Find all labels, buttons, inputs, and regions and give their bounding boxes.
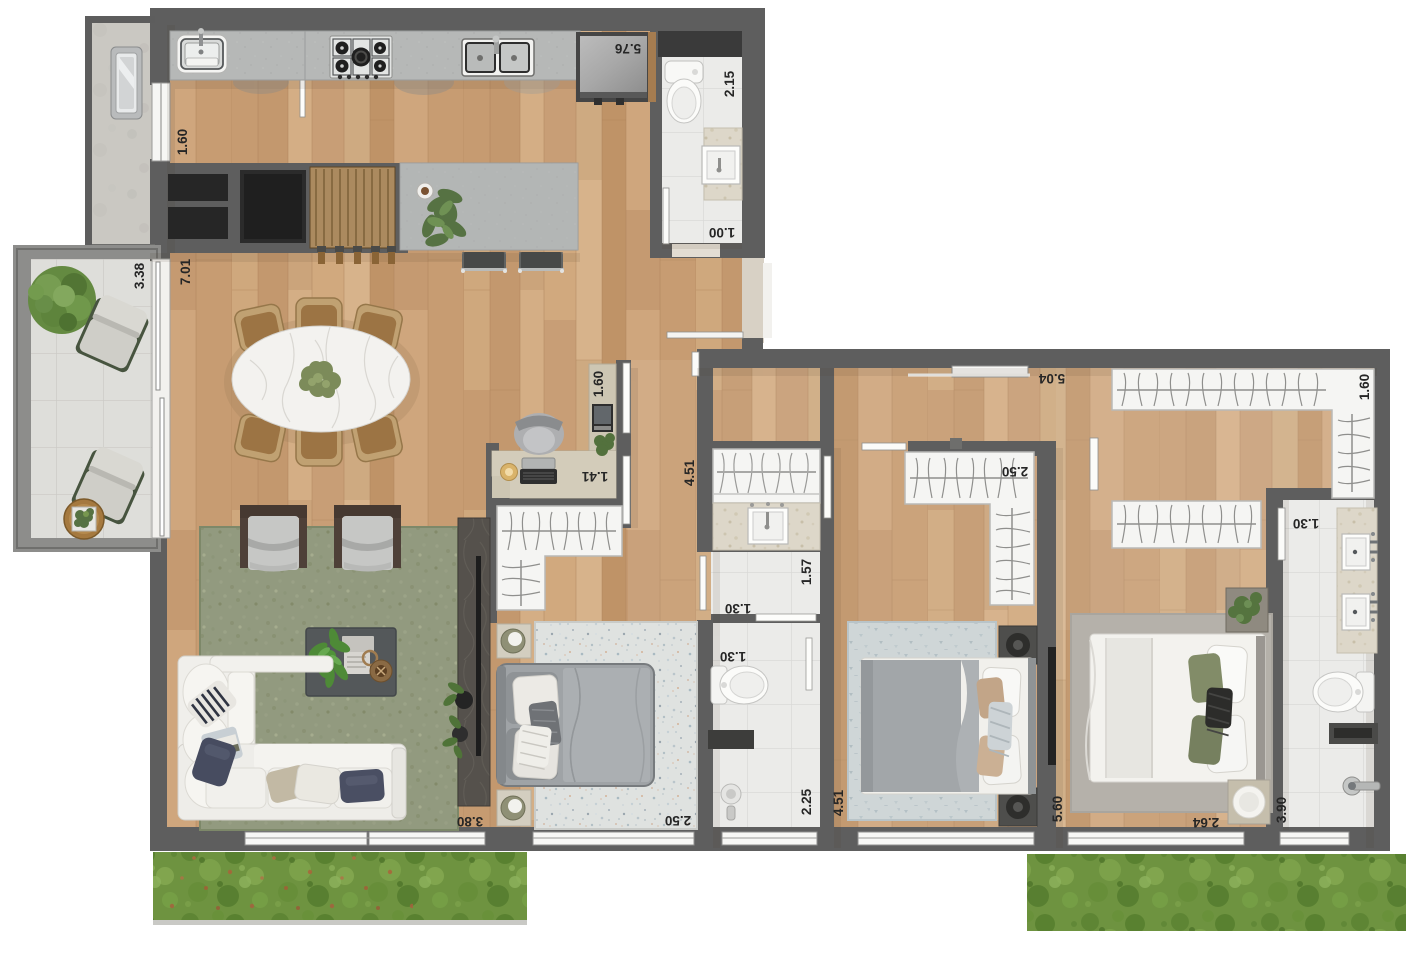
- svg-text:2.15: 2.15: [722, 70, 737, 97]
- svg-text:1.60: 1.60: [1357, 374, 1372, 400]
- svg-text:1.41: 1.41: [581, 469, 608, 484]
- svg-text:2.50: 2.50: [1002, 464, 1028, 479]
- svg-text:7.01: 7.01: [178, 258, 193, 285]
- svg-text:2.25: 2.25: [799, 788, 814, 815]
- svg-text:3.38: 3.38: [132, 262, 147, 289]
- svg-text:2.64: 2.64: [1192, 815, 1219, 830]
- svg-text:1.57: 1.57: [799, 559, 814, 585]
- svg-text:3.80: 3.80: [457, 814, 483, 829]
- svg-text:4.51: 4.51: [682, 459, 697, 486]
- svg-text:2.50: 2.50: [665, 813, 691, 828]
- svg-text:1.30: 1.30: [720, 649, 746, 664]
- svg-text:5.76: 5.76: [614, 41, 641, 56]
- svg-text:1.30: 1.30: [1293, 516, 1319, 531]
- svg-text:1.60: 1.60: [175, 129, 190, 155]
- svg-text:1.60: 1.60: [591, 371, 606, 397]
- svg-text:4.51: 4.51: [831, 789, 846, 816]
- svg-text:1.30: 1.30: [725, 601, 751, 616]
- svg-text:5.04: 5.04: [1038, 371, 1065, 386]
- svg-text:5.60: 5.60: [1050, 796, 1065, 822]
- svg-text:1.00: 1.00: [709, 225, 735, 240]
- svg-text:3.90: 3.90: [1274, 797, 1289, 823]
